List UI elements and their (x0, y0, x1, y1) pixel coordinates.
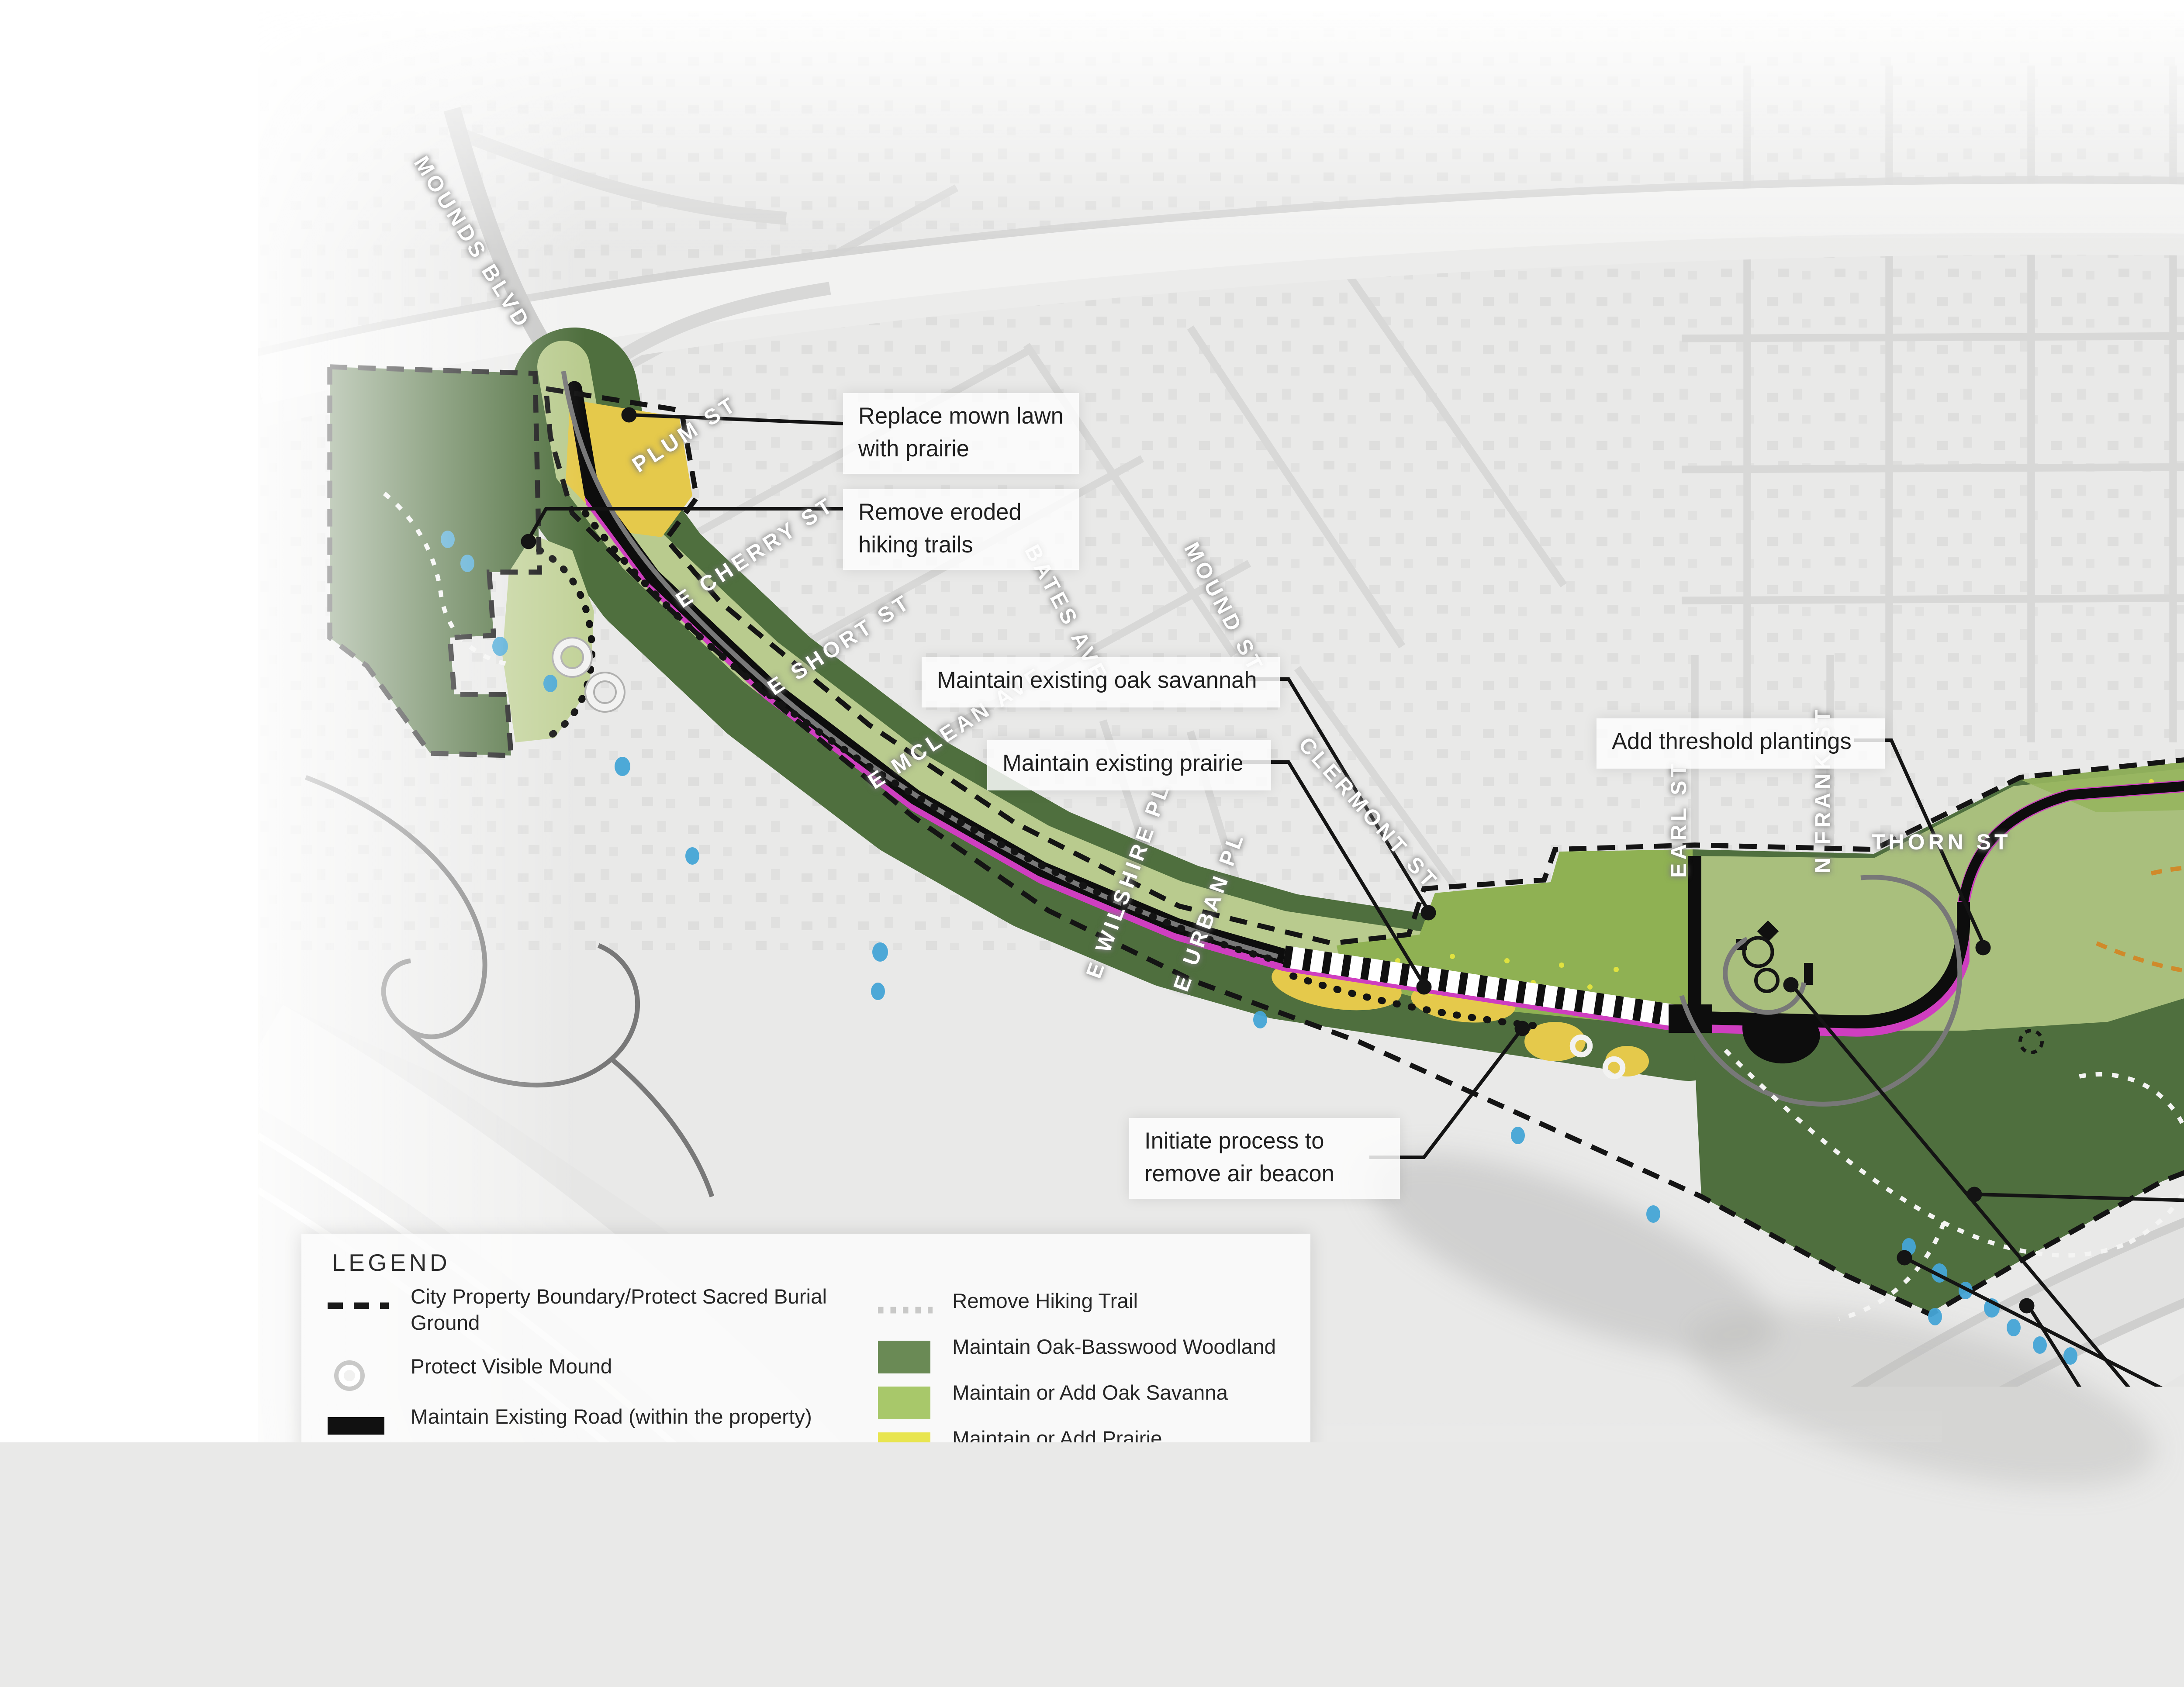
black-road-bar-icon (323, 1406, 397, 1446)
annotation-add-threshold-plantings: Add threshold plantings (1597, 718, 1885, 768)
legend-item-multiuse-trail: Maintain Multi-Use Trail (323, 1454, 627, 1494)
legend-header: LEGEND (332, 1251, 450, 1277)
street-label-earl-st: EARL ST (1669, 760, 1693, 878)
legend-item-oak-savanna: Maintain or Add Oak Savanna (874, 1382, 1228, 1421)
orange-dotted-line-icon (323, 1500, 397, 1539)
gray-dotted-line-icon (874, 1290, 939, 1330)
legend-item-threshold-band: Add Threshold Vegetative Band (874, 1566, 1244, 1605)
annotation-maintain-oak-savannah: Maintain existing oak savannah (922, 657, 1280, 707)
legend-item-traffic-calming: Traffic Calming (323, 1546, 549, 1585)
legend-item-existing-road: Maintain Existing Road (within the prope… (323, 1406, 812, 1446)
annotation-remove-eroded-trails-west: Remove eroded hiking trails (843, 489, 1079, 571)
phase1-landscape-poster: PHASE 1 LANDSCAPE CONDITION MOUNDS BLVD … (0, 0, 2184, 1687)
legend-item-prairie: Maintain or Add Prairie (874, 1428, 1162, 1467)
threshold-swatch-icon (874, 1566, 939, 1605)
white-ring-icon (323, 1356, 397, 1395)
striped-bar-icon (323, 1546, 397, 1585)
spring-ellipse-icon (874, 1520, 939, 1559)
street-label-thorn-st: THORN ST (1872, 832, 2011, 856)
thin-line-icon (323, 1454, 397, 1494)
prairie-swatch-icon (874, 1428, 939, 1467)
legend-item-add-hiking-trail: Maintain or Add Hiking Trail (323, 1500, 663, 1539)
legend-item-spring: Maintain Spring (874, 1520, 1096, 1559)
lawn-swatch-icon (874, 1474, 939, 1513)
annotation-maintain-existing-prairie: Maintain existing prairie (987, 740, 1271, 790)
legend-item-remove-hiking-trail: Remove Hiking Trail (874, 1290, 1138, 1330)
legend-item-boundary: City Property Boundary/Protect Sacred Bu… (323, 1286, 869, 1340)
legend-item-oak-basswood: Maintain Oak-Basswood Woodland (874, 1336, 1276, 1376)
dashed-boundary-icon (323, 1286, 397, 1325)
legend-item-visible-mound: Protect Visible Mound (323, 1356, 612, 1395)
savanna-swatch-icon (874, 1382, 939, 1421)
annotation-replace-mown-lawn-west: Replace mown lawn with prairie (843, 393, 1079, 475)
annotation-initiate-remove-air-beacon: Initiate process to remove air beacon (1129, 1118, 1400, 1200)
woodland-swatch-icon (874, 1336, 939, 1376)
legend-panel: LEGEND City Property Boundary/Protect Sa… (301, 1234, 1310, 1618)
legend-item-existing-lawn: Maintain Existing Lawn (874, 1474, 1165, 1513)
